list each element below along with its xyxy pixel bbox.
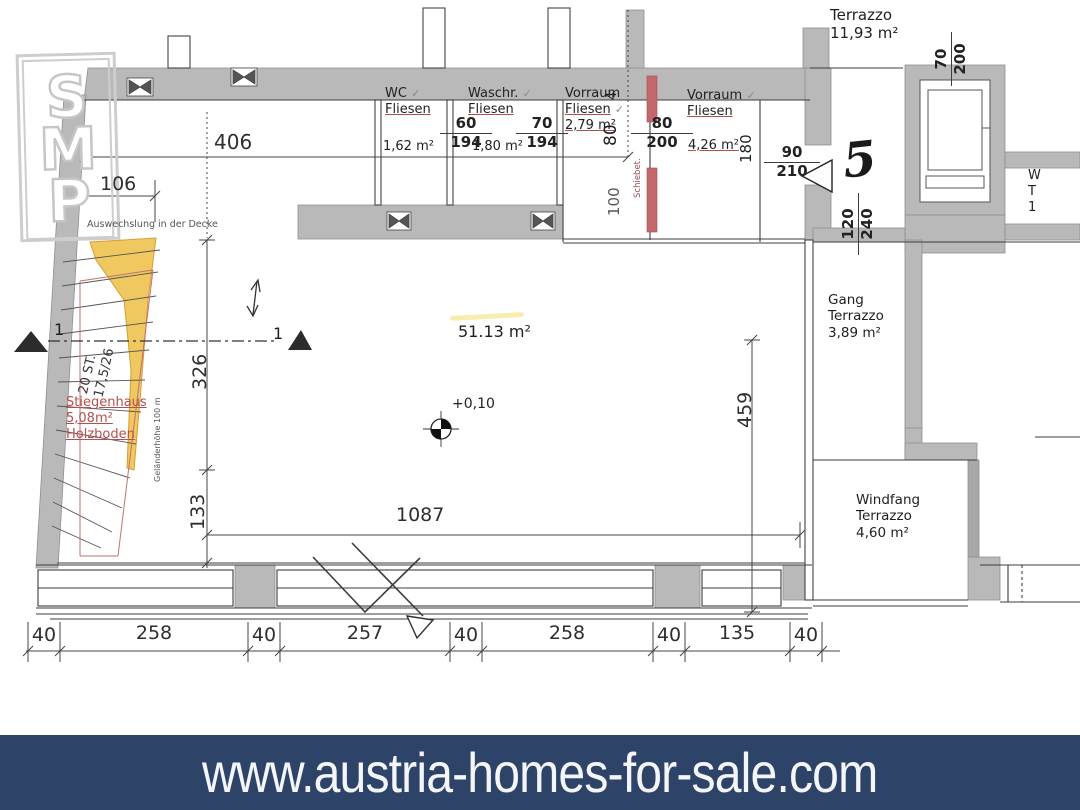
smp-logo-watermark: S M P xyxy=(16,52,121,243)
clipped-room-label: W T 1 xyxy=(1028,168,1041,216)
handwritten-number: 5 xyxy=(840,130,879,189)
dim-width: 60 xyxy=(456,116,477,132)
dim-width: 70 xyxy=(934,49,950,70)
room-label-wc: WC ✓ Fliesen xyxy=(385,86,431,118)
smp-logo-frame: S M P xyxy=(22,58,115,240)
dim-wall-80: 80 xyxy=(601,124,622,146)
chain-dim-3: 257 xyxy=(347,622,383,645)
sliding-door-walls xyxy=(647,76,657,232)
room-area-wc: 1,62 m² xyxy=(383,139,434,155)
check-mark-icon: ✓ xyxy=(615,103,624,116)
door-dim-lift: 70 200 xyxy=(934,36,969,82)
section-triangle-left xyxy=(14,331,48,352)
section-label-right: 1 xyxy=(273,324,283,344)
door-dim-vorraum: 80 200 xyxy=(636,116,688,151)
dim-wall-4: 4 xyxy=(605,92,621,100)
room-name: Terrazzo xyxy=(830,6,892,24)
chain-dim-7: 135 xyxy=(719,622,755,645)
floorplan-page: S M P WC ✓ Fliesen 1,62 m² Waschr. ✓ Fli… xyxy=(0,0,1080,810)
dim-width: 120 xyxy=(841,208,857,239)
dim-106: 106 xyxy=(100,173,136,196)
dim-height: 194 xyxy=(526,135,557,151)
dim-height: 200 xyxy=(646,135,677,151)
room-name: Gang xyxy=(828,292,864,308)
dim-height: 200 xyxy=(953,43,969,74)
chain-dim-6: 40 xyxy=(657,624,681,647)
chain-dim-5: 258 xyxy=(549,622,585,645)
room-area: 5,08m² xyxy=(66,411,113,426)
room-label-gang: Gang Terrazzo 3,89 m² xyxy=(828,292,884,341)
level-value: +0,10 xyxy=(452,396,495,413)
main-room-area: 51.13 m² xyxy=(458,322,531,342)
door-dim-entry: 90 210 xyxy=(768,145,816,180)
chain-dim-0: 40 xyxy=(32,624,56,647)
level-marker-icon xyxy=(423,411,459,447)
dim-133: 133 xyxy=(187,494,210,530)
dim-width: 90 xyxy=(782,145,803,161)
clipped-line: W xyxy=(1028,168,1041,183)
room-area: 3,89 m² xyxy=(828,325,881,341)
chain-dim-1: 258 xyxy=(136,622,172,645)
room-label-stiegenhaus: Stiegenhaus 5,08m² Holzboden xyxy=(66,395,147,443)
door-swing-arrow xyxy=(407,616,433,638)
door-dim-gang: 120 240 xyxy=(841,198,876,250)
chain-dim-2: 40 xyxy=(252,624,276,647)
check-mark-icon: ✓ xyxy=(746,89,755,102)
website-banner: www.austria-homes-for-sale.com xyxy=(0,735,1080,810)
elevator-shaft xyxy=(920,80,990,202)
dim-height: 240 xyxy=(860,208,876,239)
section-label-left: 1 xyxy=(54,320,64,340)
room-area-vorraum2: 4,26 m² xyxy=(688,138,739,154)
dim-depth-180: 180 xyxy=(737,134,755,163)
website-url: www.austria-homes-for-sale.com xyxy=(202,740,877,805)
room-name: Windfang xyxy=(856,492,920,508)
clipped-line: T xyxy=(1028,184,1036,199)
room-floor: Holzboden xyxy=(66,427,135,442)
room-label-wasch: Waschr. ✓ Fliesen xyxy=(468,86,532,118)
check-mark-icon: ✓ xyxy=(523,87,532,100)
ceiling-note: Auswechslung in der Decke xyxy=(87,219,218,231)
dim-459: 459 xyxy=(734,392,757,428)
room-area: 11,93 m² xyxy=(830,24,898,42)
room-floor: Fliesen xyxy=(687,104,733,119)
stair-direction-arrow xyxy=(247,280,260,316)
door-dim-wasch: 70 194 xyxy=(520,116,564,151)
logo-letter-p: P xyxy=(47,175,91,228)
dim-width: 80 xyxy=(652,116,673,132)
room-floor: Fliesen xyxy=(385,102,431,117)
section-triangle-right xyxy=(288,330,312,350)
sliding-door-label: Schiebet. xyxy=(633,158,643,198)
dim-pocket-100: 100 xyxy=(605,187,623,216)
dim-width: 70 xyxy=(532,116,553,132)
clipped-line: 1 xyxy=(1028,200,1036,215)
dim-height: 210 xyxy=(776,164,807,180)
dim-1087: 1087 xyxy=(396,504,444,527)
room-name: Vorraum xyxy=(687,88,742,103)
room-name: Waschr. xyxy=(468,86,518,101)
room-area: 4,60 m² xyxy=(856,525,909,541)
dim-406: 406 xyxy=(214,130,252,154)
door-dim-wc: 60 194 xyxy=(444,116,488,151)
dim-height: 194 xyxy=(450,135,481,151)
chain-dim-4: 40 xyxy=(454,624,478,647)
room-label-terrazzo: Terrazzo 11,93 m² xyxy=(830,6,898,43)
room-label-windfang: Windfang Terrazzo 4,60 m² xyxy=(856,492,920,541)
room-floor: Terrazzo xyxy=(856,508,912,524)
room-floor: Fliesen xyxy=(565,102,611,117)
room-label-vorraum2: Vorraum ✓ Fliesen xyxy=(687,88,756,120)
room-floor: Terrazzo xyxy=(828,308,884,324)
railing-note: Geländerhöhe 100 m xyxy=(153,397,163,482)
check-mark-icon: ✓ xyxy=(411,87,420,100)
chain-dim-8: 40 xyxy=(794,624,818,647)
dim-326: 326 xyxy=(189,354,212,390)
room-name: WC xyxy=(385,86,407,101)
